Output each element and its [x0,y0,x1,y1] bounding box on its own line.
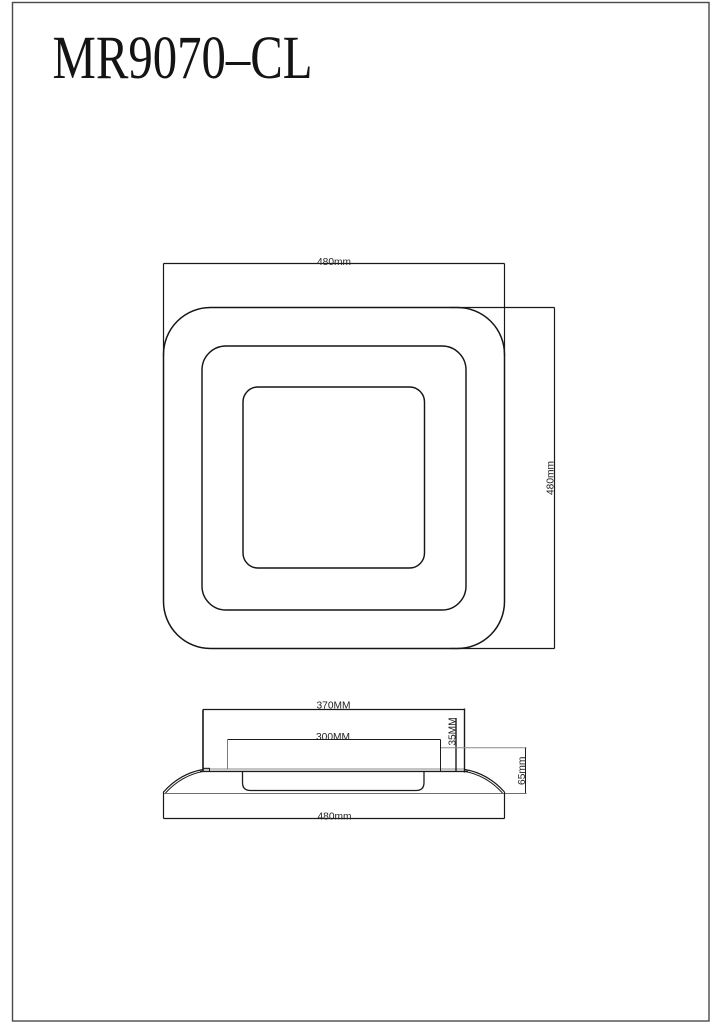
svg-text:35MM: 35MM [448,717,459,745]
svg-text:300MM: 300MM [316,732,350,743]
svg-text:480mm: 480mm [318,812,352,823]
svg-text:MR9070–CL: MR9070–CL [53,25,313,92]
svg-text:370MM: 370MM [317,701,351,712]
svg-text:480mm: 480mm [546,461,557,495]
svg-text:480mm: 480mm [317,257,351,268]
svg-text:65mm: 65mm [517,757,528,785]
